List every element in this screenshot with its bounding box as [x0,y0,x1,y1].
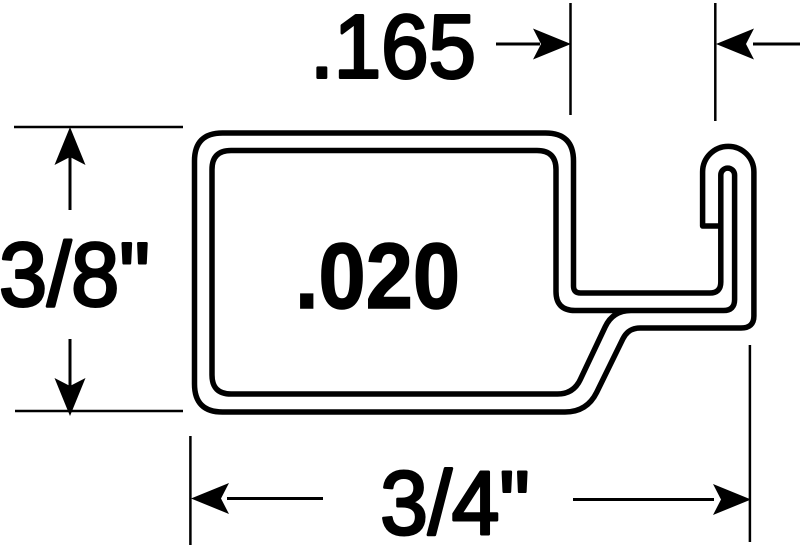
svg-text:.020: .020 [295,224,460,328]
svg-text:3/4": 3/4" [380,454,530,554]
svg-text:.165: .165 [310,0,476,98]
svg-text:3/8": 3/8" [0,226,150,326]
